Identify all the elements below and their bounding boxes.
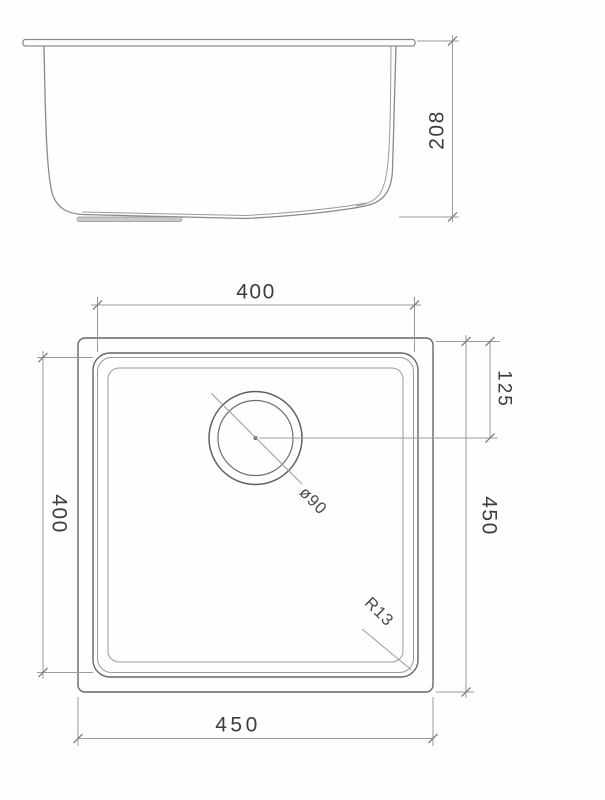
dim-bowl-depth-400: 400 (37, 351, 93, 679)
dim-label-overall-depth: 450 (478, 496, 501, 536)
sink-drawing-canvas: 208 ø90 R13 400 (0, 0, 605, 800)
bowl-bottom-slope-line (82, 203, 366, 216)
dim-label-height: 208 (426, 110, 449, 150)
dim-label-drain-offset: 125 (494, 370, 515, 408)
technical-drawing-page: 208 ø90 R13 400 (0, 0, 605, 800)
bowl-bottom-edge (108, 368, 403, 662)
dim-bowl-width-400: 400 (91, 281, 421, 353)
dim-overall-depth-450: 450 (436, 335, 501, 698)
dim-label-corner-radius: R13 (361, 594, 397, 630)
side-elevation-view: 208 (23, 35, 459, 222)
radius-leader-line (362, 629, 412, 670)
bowl-profile-outline (44, 46, 396, 219)
sink-rim-flange (23, 40, 415, 47)
drain: ø90 (209, 392, 330, 519)
dim-label-bowl-width: 400 (236, 281, 276, 304)
dim-height-208: 208 (399, 35, 459, 222)
bowl-rim-inner-line (98, 358, 414, 673)
dim-label-overall-width: 450 (215, 714, 261, 737)
bowl-inner-wall-line (356, 46, 391, 206)
dim-label-drain-diameter: ø90 (296, 484, 331, 519)
plan-view: ø90 R13 400 400 450 (37, 281, 515, 747)
drain-foot-bar (77, 217, 182, 222)
dim-label-bowl-depth: 400 (48, 494, 71, 534)
corner-radius-callout: R13 (361, 594, 412, 670)
dim-overall-width-450: 450 (74, 697, 438, 746)
bowl-rim-outer-line (93, 353, 418, 677)
